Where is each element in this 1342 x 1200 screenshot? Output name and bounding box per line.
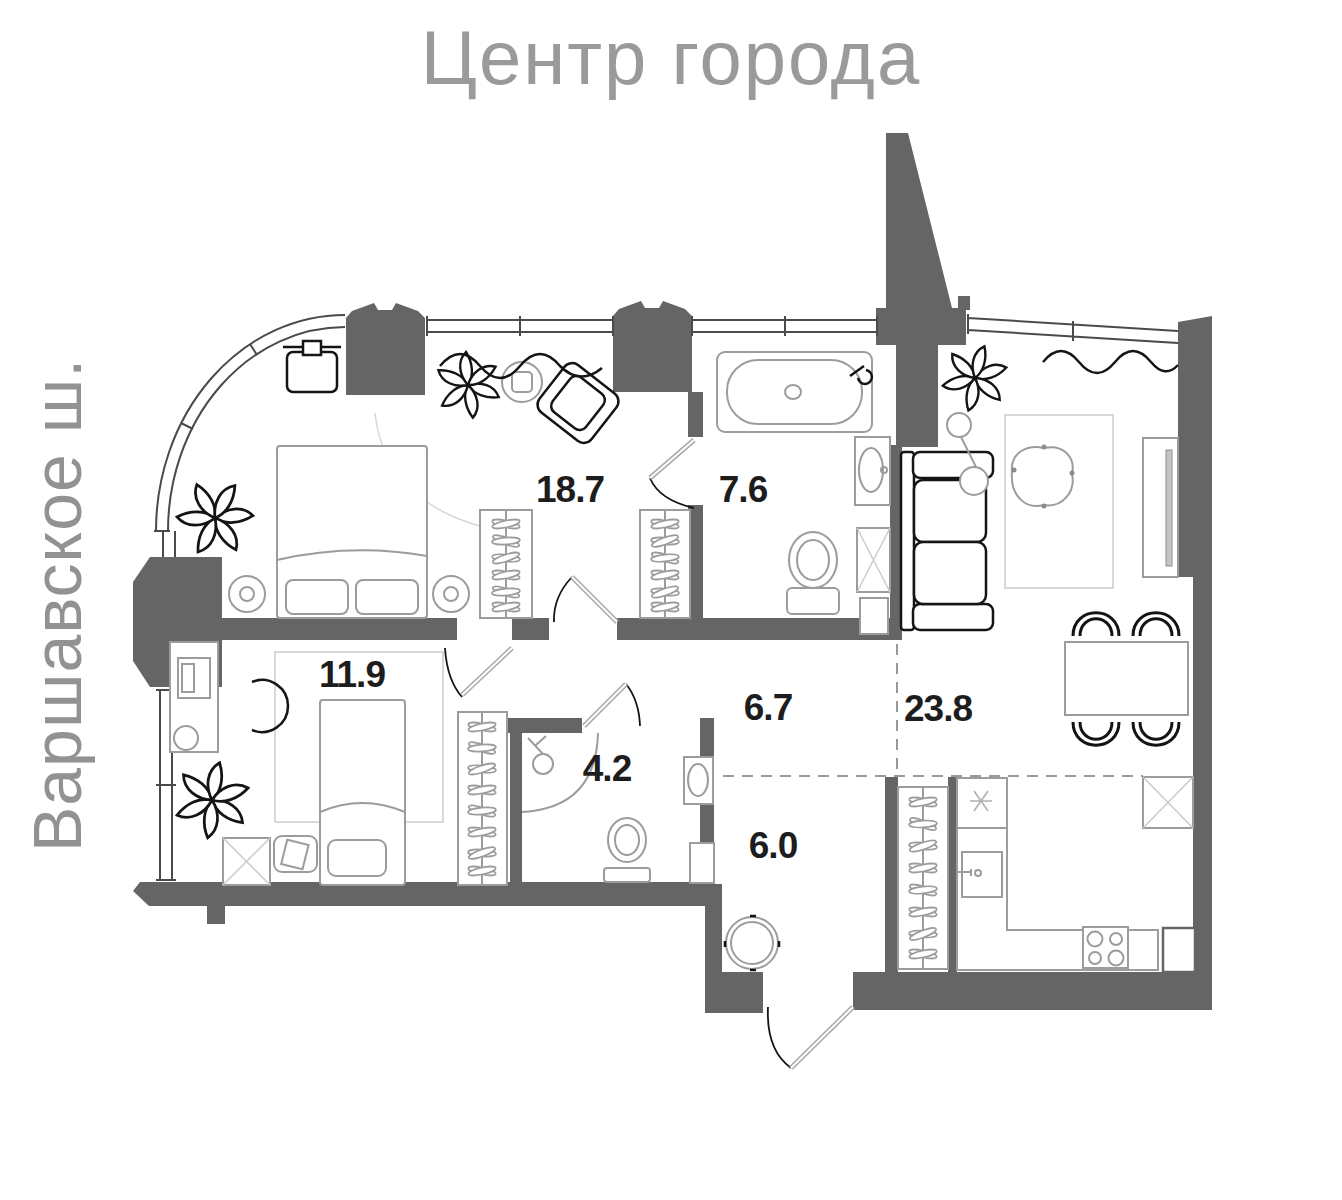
wall-mid-a1	[163, 618, 457, 640]
wall-tower	[876, 133, 966, 345]
stove	[1083, 927, 1128, 968]
light-symbol	[970, 791, 992, 811]
corner-niche	[1163, 928, 1195, 972]
door-shower-room	[584, 684, 640, 726]
dining-chair	[1133, 613, 1179, 636]
wall-closet-left	[885, 777, 898, 972]
double-bed	[277, 446, 427, 618]
window-top-right	[968, 314, 1178, 343]
wardrobe-master-1	[480, 510, 532, 618]
dining-chair	[1133, 722, 1179, 745]
wall-mid-a2	[512, 618, 549, 640]
pouf-hallway	[725, 916, 779, 970]
bathtub	[717, 352, 872, 432]
tv-console	[1143, 438, 1178, 577]
coffee-table	[1012, 445, 1075, 509]
toilet-shower-room	[604, 818, 650, 882]
wardrobe-master-2	[640, 510, 690, 618]
master-bedroom: 18.7	[176, 341, 690, 618]
plant-master-left	[176, 482, 253, 556]
nightstand-left	[229, 576, 265, 612]
wall-tower-tab	[958, 296, 970, 310]
second-bedroom: 11.9	[158, 642, 507, 885]
wall-mid-a3	[617, 618, 893, 640]
room-area-hallway: 6.0	[749, 825, 798, 866]
wall-bath-b1	[688, 392, 703, 437]
tv-unit	[283, 341, 341, 392]
coat-closet	[898, 787, 948, 969]
curtain-living	[1043, 351, 1178, 373]
room-area-bathroom: 7.6	[719, 469, 768, 510]
wall-block-a	[346, 303, 425, 395]
dining-chair	[1073, 722, 1119, 745]
window-left-master	[163, 531, 175, 557]
pouf-bedroom	[502, 362, 542, 402]
wall-living-left-upper	[896, 345, 938, 447]
nightstand-bedroom2	[274, 836, 317, 872]
room-area-master-bedroom: 18.7	[536, 469, 604, 510]
side-table	[960, 467, 988, 495]
door-second-bedroom	[445, 648, 512, 697]
wall-block-b	[613, 301, 692, 392]
duct-bedroom2	[223, 838, 270, 885]
room-area-shower-room: 4.2	[583, 748, 632, 789]
room-area-corridor: 6.7	[744, 687, 792, 728]
corridor: 6.7	[744, 687, 792, 728]
duct-bathroom	[857, 528, 890, 634]
desk-chair	[252, 680, 288, 732]
duct-shower-room	[690, 843, 714, 883]
window-top-2	[692, 316, 877, 336]
washbasin-shower-room	[684, 757, 713, 804]
wall-bottom-left	[133, 882, 705, 924]
toilet-bathroom	[787, 532, 839, 614]
room-area-second-bedroom: 11.9	[319, 654, 385, 695]
washbasin-bathroom	[855, 437, 890, 505]
nightstand-right	[433, 576, 469, 612]
hallway: 6.0	[725, 825, 798, 971]
wall-bottom-right	[853, 972, 1212, 1010]
kitchen-sink	[957, 852, 1002, 897]
kitchen-living-room: 23.8	[898, 339, 1195, 972]
wall-shower-left	[510, 718, 522, 885]
wall-closet-right	[948, 777, 957, 972]
desk	[170, 642, 218, 752]
plant-living	[934, 339, 1015, 418]
wardrobe-bedroom2	[458, 712, 507, 885]
shower-room: 4.2	[522, 733, 714, 883]
entrance-door	[768, 1007, 853, 1068]
bathroom: 7.6	[717, 352, 890, 634]
room-area-kitchen-living: 23.8	[904, 688, 972, 729]
door-master-bedroom	[554, 577, 617, 622]
dining-chair	[1073, 613, 1119, 636]
rug-living	[1005, 415, 1113, 588]
armchair	[534, 359, 623, 447]
floor-plan: 18.7 7.6	[0, 0, 1342, 1200]
window-top-1	[427, 316, 613, 336]
door-bathroom	[650, 440, 694, 508]
dining-table	[1065, 642, 1188, 715]
single-bed	[320, 700, 405, 885]
fridge	[1143, 777, 1193, 828]
